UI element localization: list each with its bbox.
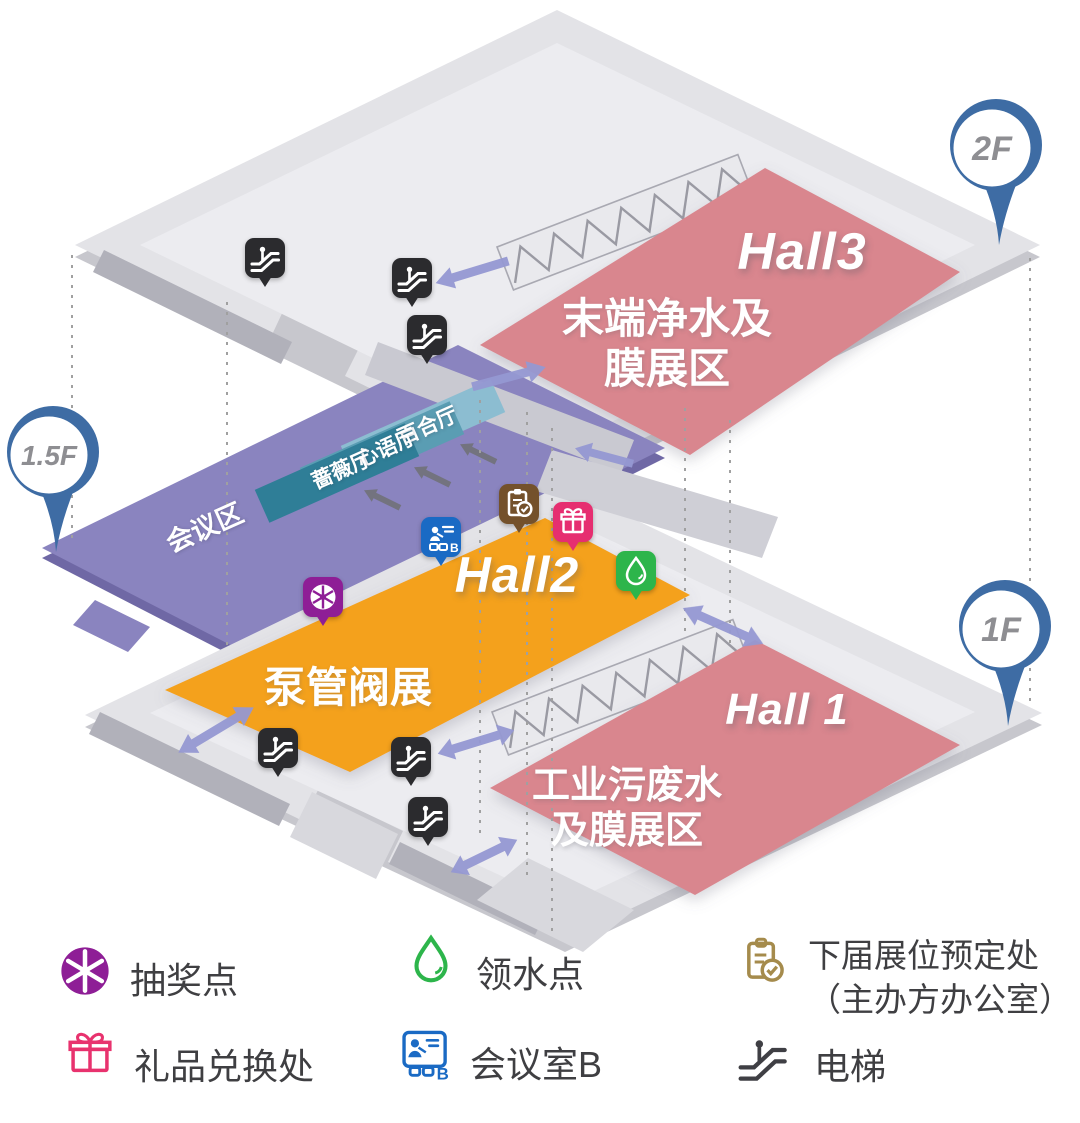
lottery-point-badge [303,577,343,617]
legend-label-meeting: 会议室B [470,1036,602,1088]
gift-box-icon [62,1026,118,1082]
hall1-desc-line1: 工业污废水 [477,764,777,809]
hall3-title: Hall3 [702,226,902,278]
escalator-icon [245,238,285,278]
escalator-icon [407,315,447,355]
booth-booking-clipboard-icon [499,484,539,524]
escalator-badge [392,258,432,298]
legend-item-escalator: 电梯 [734,1026,886,1090]
floor-pin-2f-label: 2F [971,130,1013,168]
hall1-desc: 工业污废水 及膜展区 [477,764,777,854]
escalator-icon [258,728,298,768]
floor-pin-2f: 2F [948,95,1044,255]
escalator-icon [408,797,448,837]
floor-pin-1-5f: 1.5F [5,402,101,562]
escalator-icon [734,1026,798,1090]
exhibition-floor-map: Hall3 末端净水及 膜展区 Hall2 泵管阀展 Hall 1 工业污废水 … [0,0,1080,1123]
meeting-room-b-icon: B [421,517,461,557]
legend-label-gift: 礼品兑换处 [134,1038,314,1090]
hall1-title: Hall 1 [687,688,887,732]
booth-booking-clipboard-icon [736,934,792,990]
legend-label-lottery: 抽奖点 [130,952,238,1004]
legend-label-booking-line1: 下届展位预定处 [808,934,1072,978]
hall3-desc-line2: 膜展区 [502,344,832,394]
floor-pin-1f-label: 1F [981,611,1022,649]
water-drop-icon [616,551,656,591]
water-drop-icon [402,932,460,990]
legend-label-booking: 下届展位预定处 （主办方办公室） [808,934,1072,1021]
escalator-badge [391,737,431,777]
lottery-wheel-icon [303,577,343,617]
meeting-room-b-icon: B [398,1024,456,1082]
escalator-icon [391,737,431,777]
hall3-desc: 末端净水及 膜展区 [502,294,832,393]
hall1-desc-line2: 及膜展区 [477,809,777,854]
legend-label-water: 领水点 [476,946,584,998]
legend-item-gift: 礼品兑换处 [62,1026,314,1090]
legend-label-booking-line2: （主办方办公室） [808,978,1072,1022]
hall2-desc: 泵管阀展 [218,663,478,713]
meeting-room-b-letter: B [437,1065,449,1082]
legend-label-escalator: 电梯 [814,1038,886,1090]
water-point-badge [616,551,656,591]
legend-item-meeting: B 会议室B [398,1024,602,1088]
gift-exchange-badge [553,502,593,542]
lottery-wheel-icon [58,944,112,998]
escalator-badge [407,315,447,355]
legend-item-lottery: 抽奖点 [58,944,238,1004]
legend-item-booking: 下届展位预定处 （主办方办公室） [736,934,1072,1021]
escalator-badge [245,238,285,278]
floor-pin-1f: 1F [957,576,1053,736]
floor-pin-1-5f-label: 1.5F [21,440,78,471]
escalator-badge [258,728,298,768]
escalator-icon [392,258,432,298]
hall3-desc-line1: 末端净水及 [502,294,832,344]
meeting-room-b-letter: B [450,541,459,555]
gift-box-icon [553,502,593,542]
escalator-badge [408,797,448,837]
meeting-room-b-badge: B [421,517,461,557]
floor-1-5f-tab [73,600,150,652]
booth-booking-badge [499,484,539,524]
legend-item-water: 领水点 [402,932,584,998]
